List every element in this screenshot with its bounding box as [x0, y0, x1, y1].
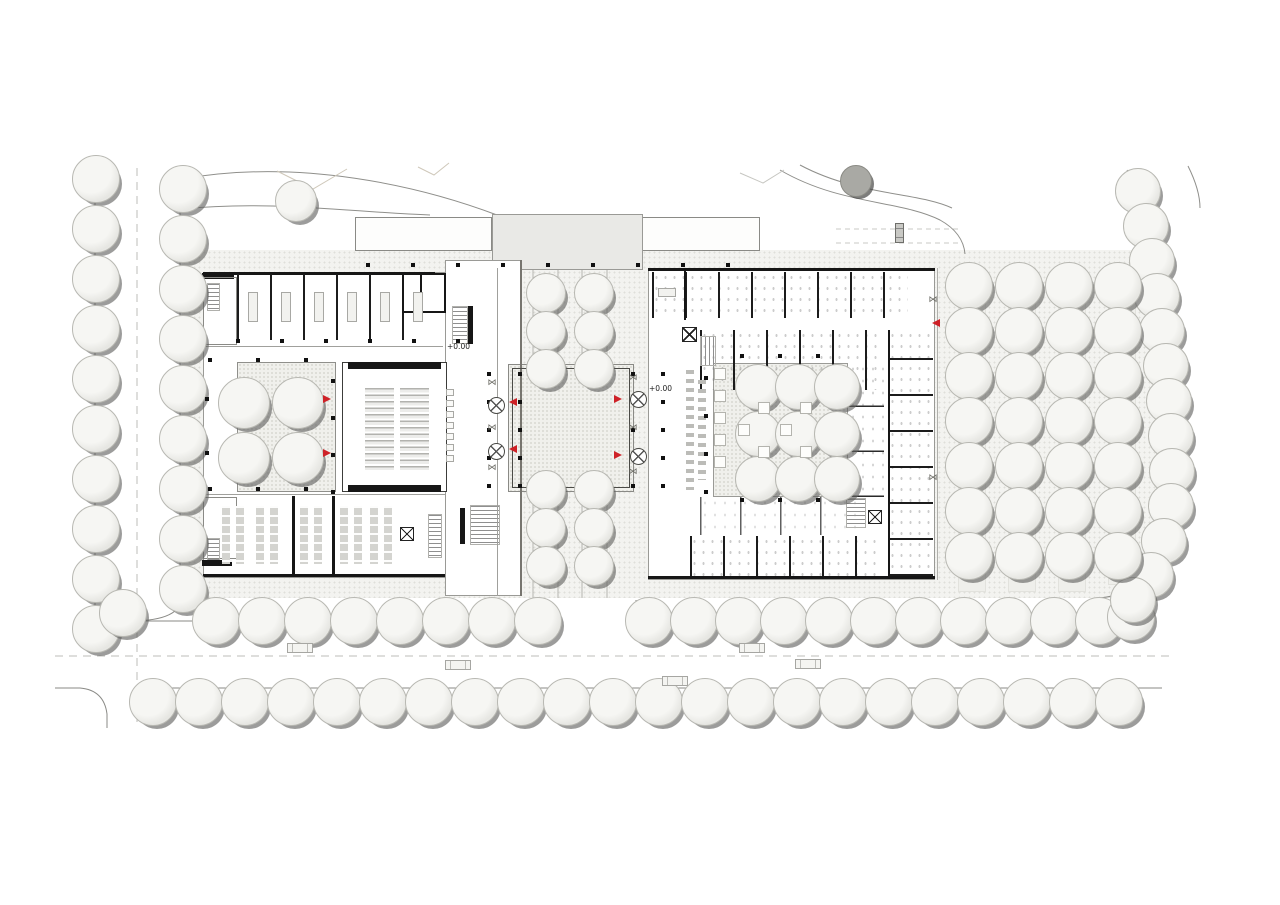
auditorium-seating-left: [365, 388, 394, 470]
canopy-east-wing: [641, 217, 760, 251]
classroom-desks: [256, 506, 284, 564]
corridor-line: [203, 494, 445, 495]
dorm-rooms-south-band: [690, 536, 882, 576]
east-wing-wall: [888, 330, 890, 576]
central-plaza-inner-edge: [512, 368, 630, 488]
left-building-south-wall: [203, 574, 445, 577]
right-building-south-wall: [648, 576, 935, 579]
colonnade-line-west: [497, 268, 498, 596]
stair-right-building-north: [700, 336, 716, 366]
stair-right-building-south: [846, 498, 866, 528]
elevator-left-building: [400, 527, 414, 541]
classroom-desks: [340, 506, 366, 564]
classroom-wall: [292, 496, 295, 574]
stair-wall-bar: [460, 508, 465, 544]
dorm-rooms-courtyard-east: [848, 363, 884, 497]
classroom-desks: [300, 506, 326, 564]
stair-wall-bar: [468, 306, 473, 344]
site-plan-canvas: ⋈⋈⋈⋈⋈⋈⋈⋈+0.00+0.00: [0, 0, 1280, 905]
elevator-right-building-south: [868, 510, 882, 524]
cafeteria-furniture: [686, 370, 694, 490]
auditorium-seating-right: [400, 388, 429, 470]
core-wall: [402, 311, 422, 313]
east-walkway-line: [937, 268, 938, 580]
dorm-wall: [684, 270, 686, 320]
dorm-rooms-north-band: [652, 272, 908, 318]
roads-and-paths-layer: [0, 0, 1280, 905]
dorm-rooms-courtyard-south: [700, 497, 860, 535]
left-courtyard: [237, 362, 336, 492]
dorm-rooms-east-wing: [888, 330, 933, 576]
core-wall: [420, 273, 422, 299]
stair-south-core: [428, 514, 442, 558]
auditorium: [342, 362, 447, 492]
classroom-wall: [332, 496, 335, 574]
elevator-right-building-north: [682, 327, 697, 342]
stair-hall-south: [470, 505, 500, 545]
right-building-north-wall: [648, 268, 935, 271]
auditorium-stage-wall: [348, 362, 441, 369]
stair-entrance-hall: [452, 306, 468, 344]
corridor-line: [203, 346, 443, 347]
canopy-west-wing: [355, 217, 492, 251]
classroom-desks: [370, 506, 396, 564]
classroom-desks: [222, 506, 250, 564]
auditorium-rear-wall: [348, 485, 441, 492]
stair-northwest: [207, 283, 220, 311]
lobby-table: [658, 288, 676, 297]
service-core-north: [402, 273, 446, 313]
cafeteria-furniture: [698, 380, 706, 480]
